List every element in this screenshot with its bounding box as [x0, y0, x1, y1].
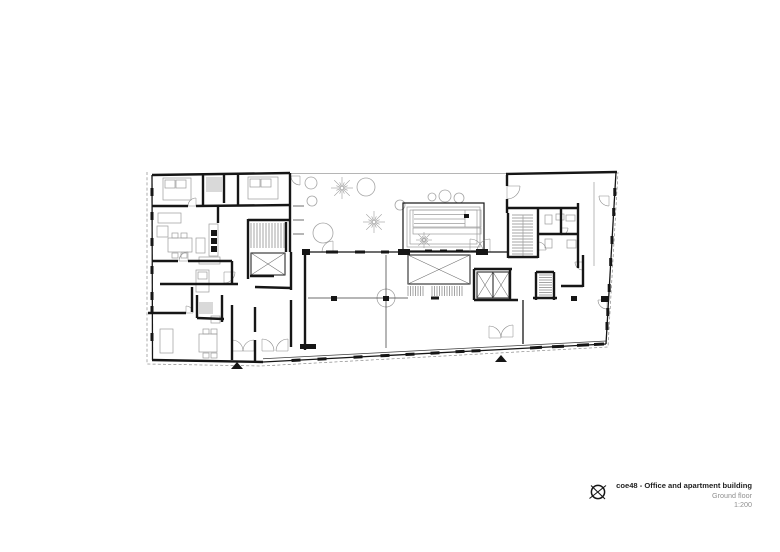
- north-arrow-icon: [587, 481, 609, 503]
- floor-plan-drawing: [0, 0, 780, 552]
- floor-label: Ground floor: [616, 491, 752, 500]
- site-boundary-layer: [147, 172, 618, 366]
- trees-layer: [305, 177, 464, 248]
- drawing-sheet: coe48 - Office and apartment building Gr…: [0, 0, 780, 552]
- scale-label: 1:200: [616, 500, 752, 509]
- title-text-group: coe48 - Office and apartment building Gr…: [616, 481, 752, 510]
- doors-layer: [179, 176, 609, 351]
- project-title: coe48 - Office and apartment building: [616, 481, 752, 491]
- walls-layer: [148, 172, 617, 362]
- title-block: coe48 - Office and apartment building Gr…: [587, 481, 752, 510]
